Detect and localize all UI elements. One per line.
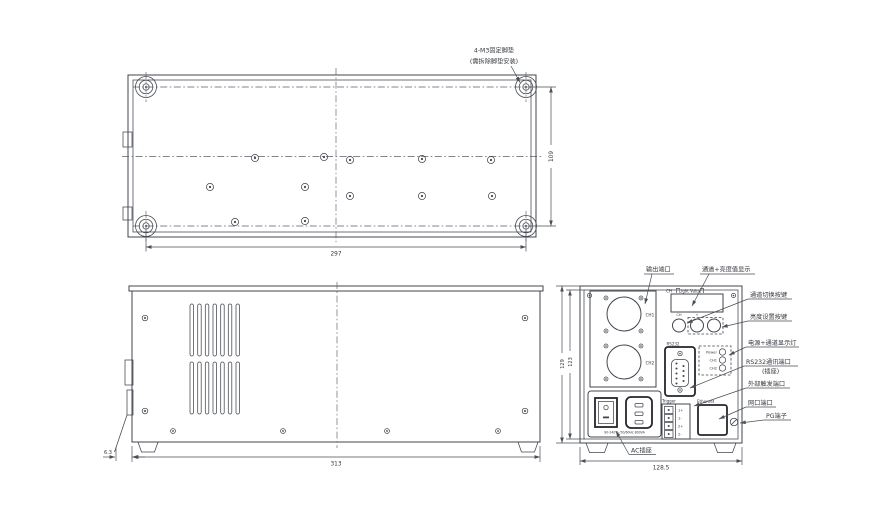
dim-rear-height-inner: 123 — [568, 357, 574, 367]
drawing-svg: 4-M3固定脚垫 (需拆除脚垫安装) 297 109 — [0, 0, 888, 522]
status-leds: Power CH1 CH2 — [699, 346, 731, 375]
rear-foot — [586, 443, 608, 453]
led-ch1-label: CH1 — [710, 359, 718, 363]
ac-rating-text: 90-240V~50/60Hz 800VA — [604, 431, 645, 435]
display-value-label: Light Value — [679, 289, 702, 294]
ethernet-port: Ethernet — [697, 399, 727, 435]
switch-off-symbol — [604, 405, 608, 409]
trigger-label: Trigger — [661, 399, 676, 404]
dim-rear-height-outer: 129 — [560, 359, 566, 369]
annotation-ext-trigger: 外部触发端口 — [748, 380, 785, 388]
label-ch1: CH1 — [646, 313, 655, 318]
output-connector-panel: CH1 CH2 — [590, 291, 656, 387]
annotation-rs232-socket: (插座) — [762, 368, 779, 376]
annotation-channel-switch: 通道切换按键 — [750, 291, 787, 299]
ch1-led — [719, 357, 725, 363]
ch2-led — [719, 365, 725, 371]
dim-side-length: 313 — [330, 462, 341, 468]
annotation-output-port: 输出端口 — [646, 266, 671, 274]
dim-top-height: 109 — [549, 151, 555, 162]
vent-slots — [190, 304, 240, 414]
side-screws — [142, 315, 528, 433]
output-connector-ch1 — [607, 297, 641, 331]
trigger-pin1-label: 1+ — [678, 409, 683, 413]
iec-inlet — [626, 397, 652, 428]
top-view: 4-M3固定脚垫 (需拆除脚垫安装) 297 109 — [122, 47, 556, 258]
annotation-brightness-set: 亮度设置按键 — [750, 313, 787, 321]
annotation-ac-socket: AC插座 — [631, 447, 652, 455]
pg-terminal — [730, 418, 738, 426]
display-ch-label: CH — [666, 289, 672, 294]
technical-drawing-canvas: 4-M3固定脚垫 (需拆除脚垫安装) 297 109 — [0, 0, 888, 522]
power-led — [719, 349, 725, 355]
trigger-terminal: Trigger 1+ 1- 2+ 2- — [661, 399, 690, 440]
side-view: 313 6.3 — [103, 282, 543, 468]
panel-buttons: CH + - — [673, 313, 724, 334]
annotation-display: 通道+亮度值显示 — [702, 266, 751, 274]
trigger-pin3-label: 2+ — [678, 425, 683, 429]
led-ch2-label: CH2 — [710, 367, 718, 371]
side-foot — [138, 442, 158, 452]
brightness-down-button — [708, 319, 721, 332]
rs232-label: RS232 — [667, 342, 680, 347]
channel-brightness-display: CH Light Value — [666, 289, 723, 313]
side-foot — [518, 442, 538, 452]
annotation-pg-terminal: PG端子 — [766, 412, 787, 420]
screw-holes — [206, 153, 495, 225]
dim-rear-width: 128.5 — [653, 466, 670, 472]
trigger-pin4-label: 2- — [678, 433, 682, 437]
trigger-pin2-label: 1- — [678, 417, 682, 421]
button-plus-label: + — [695, 313, 698, 317]
annotation-rs232-port: RS232通讯端口 — [746, 358, 791, 366]
label-ch2: CH2 — [646, 361, 655, 366]
led-power-label: Power — [706, 351, 717, 355]
switch-on-symbol — [603, 417, 609, 419]
foot-note-line2: (需拆除脚垫安装) — [470, 58, 518, 66]
dim-top-width: 297 — [330, 252, 341, 258]
ac-inlet-module: 90-240V~50/60Hz 800VA — [588, 391, 661, 437]
annotation-lan-port: 网口端口 — [748, 399, 773, 407]
rear-view: CH1 CH2 CH Light Value CH + - RS232 — [556, 266, 799, 472]
dim-side-offset: 6.3 — [104, 450, 112, 456]
channel-switch-button — [673, 319, 686, 332]
foot-note-line1: 4-M3固定脚垫 — [474, 47, 515, 55]
button-ch-label: CH — [676, 313, 682, 317]
output-connector-ch2 — [607, 345, 641, 379]
rear-foot — [714, 443, 736, 453]
annotation-power-leds: 电源+通道显示灯 — [748, 339, 797, 347]
button-minus-label: - — [713, 313, 715, 317]
